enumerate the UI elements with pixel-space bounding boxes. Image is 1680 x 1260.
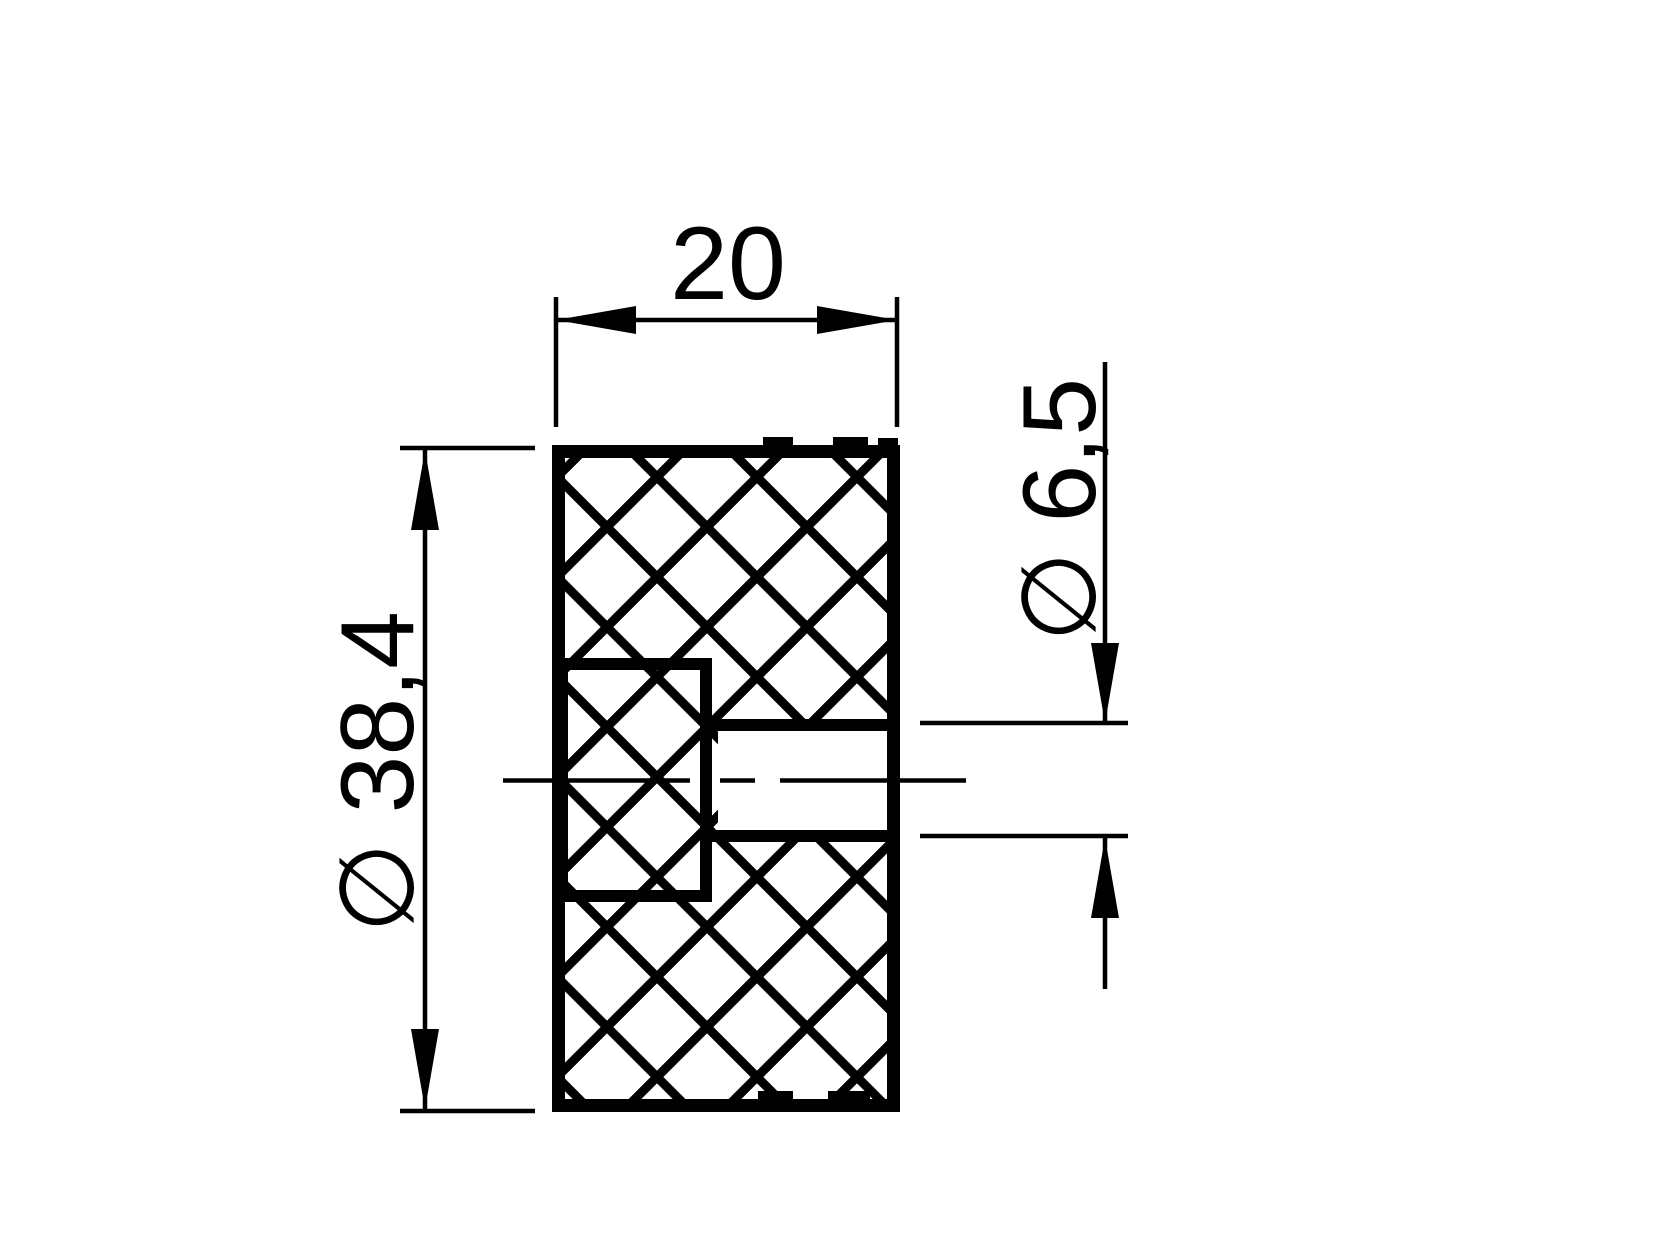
arrowhead-left-icon	[556, 306, 636, 334]
part-body	[503, 437, 966, 1112]
seam-mark	[828, 1091, 870, 1100]
arrowhead-down-icon	[411, 1029, 439, 1109]
dimension-outer-diameter-label: ∅ 38,4	[320, 611, 436, 933]
dimension-outer-diameter: ∅ 38,4	[320, 448, 535, 1111]
dimension-width-label: 20	[670, 206, 786, 322]
section-view-technical-drawing: 20 ∅ 38,4 ∅ 6,5	[0, 0, 1680, 1260]
drawing-canvas: 20 ∅ 38,4 ∅ 6,5	[0, 0, 1680, 1260]
seam-mark	[763, 437, 793, 446]
seam-mark	[758, 1091, 793, 1100]
arrowhead-down-icon	[1091, 643, 1119, 723]
seam-mark	[878, 438, 898, 446]
dimension-bore-diameter: ∅ 6,5	[920, 362, 1128, 989]
seam-mark	[833, 437, 868, 446]
dimension-width: 20	[556, 206, 897, 427]
dimension-bore-diameter-label: ∅ 6,5	[1002, 378, 1118, 642]
arrowhead-up-icon	[411, 450, 439, 530]
arrowhead-right-icon	[817, 306, 897, 334]
arrowhead-up-icon	[1091, 838, 1119, 918]
